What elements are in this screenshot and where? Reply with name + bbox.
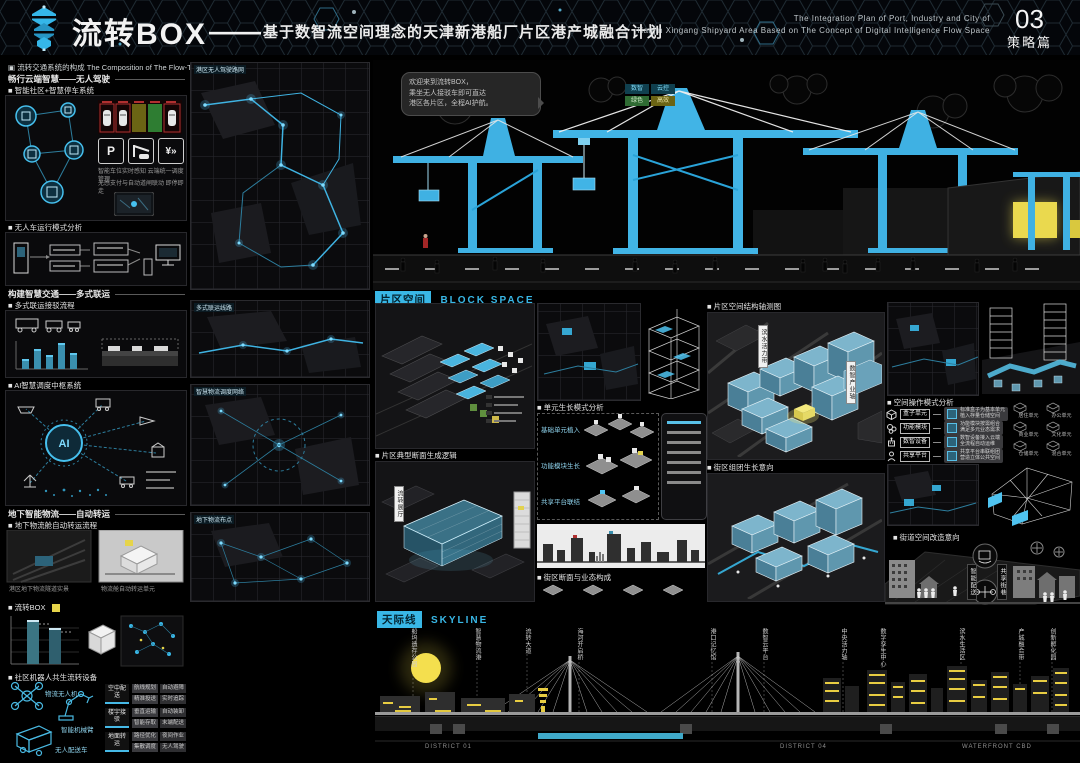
caption-flow-box: ■ 流转BOX	[8, 602, 60, 613]
skyline-label: 海河开启桥	[575, 628, 584, 661]
street-retrofit-elevation: 智能配送 共享街巷	[885, 540, 1080, 606]
header: 流转BOX —— 基于数智流空间理念的天津新港船厂片区港产城融合计划 The I…	[0, 0, 1080, 55]
axon-blue-blocks-top: 滨水活力带 数智产业轴	[707, 312, 885, 460]
robot-icon	[886, 437, 897, 448]
axon-warehouse-retrofit	[375, 303, 535, 449]
map-d2-graphics	[888, 465, 978, 525]
board-subtitle-en: The Integration Plan of Port, Industry a…	[636, 13, 990, 37]
op-row-module: 功能模块 功能模块按需组合满足多元业态需求	[886, 422, 1008, 434]
heading-autodrive: 畅行云端智慧——无人驾驶	[8, 73, 185, 85]
person-icon	[886, 451, 897, 462]
skyline-label: 滨水生活区	[957, 628, 966, 661]
map-b-graphics	[538, 304, 640, 400]
panel-autodrive: P ¥» 智能车位实时感知 云端统一调度管理 无感支付与自动道闸联动 即停即走	[5, 95, 187, 221]
robot-capability-table: 空中配送 航线规划自动避障 精准投送实时追踪 楼宇接驳 垂直运输自动装卸 智能存…	[105, 684, 186, 752]
panel-vehicle-flow	[5, 232, 187, 286]
axon-glass-hall: 流转展厅	[375, 461, 535, 602]
skyline-label: 智慧物流港	[473, 628, 482, 661]
multimodal-diagram	[6, 311, 184, 375]
growth-row-1-label: 基础单元植入	[541, 424, 580, 434]
street-section-strip	[537, 524, 705, 568]
map-underground-nodes: 地下物流布点	[190, 512, 370, 602]
map1-graphics	[191, 63, 369, 289]
caption-cluster-growth: ■ 街区组团生长意向	[707, 462, 774, 473]
red-figure	[423, 234, 428, 248]
robot-item-drone: 物流无人机	[45, 688, 78, 698]
board-subtitle: 基于数智流空间理念的天津新港船厂片区港产城融合计划	[263, 21, 663, 42]
panel-underground: 港区地下物流隧道实景 物流舱自动转运单元	[5, 530, 185, 600]
growth-guideline-list	[661, 413, 707, 520]
speech-bubble: 欢迎来到流转BOX， 乘坐无人接驳车即可直达 港区各片区，全程AI护航。	[401, 72, 541, 116]
tower-cluster-axon	[982, 302, 1080, 394]
map-multimodal-lines: 多式联运线路	[190, 300, 370, 378]
op-row-box-unit: 盒子单元 标准盒子为基本单元植入存量仓储空间	[886, 408, 1008, 420]
street-elevation-graphics	[885, 540, 1080, 606]
map-d1-graphics	[888, 303, 978, 395]
skyline-label: 港口记忆馆	[708, 628, 717, 661]
smart-tags: 数智云控 绿色高效	[625, 84, 675, 106]
robot-item-arm: 智能机械臂	[61, 724, 94, 734]
unit-type-grid: 居住单元 办公单元 商业单元 文化单元 仓储单元 混合单元	[1012, 402, 1078, 459]
unit-cell: 商业单元	[1012, 421, 1045, 440]
table-row: 地面转运 路径优化夜间作业 集散调度无人驾驶	[105, 732, 186, 752]
left-industry	[380, 692, 535, 712]
caption-structure-axon: ■ 片区空间结构轴测图	[707, 301, 781, 312]
panel-flow-box	[5, 614, 185, 670]
skyline-bottom-label: DISTRICT 01	[425, 744, 472, 750]
axon-c1-tag-1: 滨水活力带	[758, 325, 768, 368]
unit-cell: 办公单元	[1045, 402, 1078, 421]
street-tag-1: 智能配送	[967, 564, 977, 600]
skyline-label: 流转大道	[523, 628, 532, 654]
map-operations-context	[887, 302, 979, 396]
street-tag-2: 共享街巷	[997, 564, 1007, 600]
underground-note-1: 港区地下物流隧道实景	[9, 586, 69, 594]
logo-emblem-icon	[22, 5, 66, 51]
parking-icons-row: P ¥»	[98, 138, 184, 164]
map4-caption: 地下物流布点	[194, 515, 234, 524]
map3-caption: 智慧物流调度网络	[194, 387, 246, 396]
skyline-label: 船坞遗存公园	[409, 628, 418, 667]
cable-bridge-2	[661, 652, 815, 712]
phone-mockup	[114, 192, 154, 216]
gate-barrier-icon	[128, 138, 154, 164]
caption-operations: ■ 空间操作模式分析	[887, 397, 954, 408]
axon-blue-blocks-bottom	[707, 473, 885, 602]
robot-item-agv: 无人配送车	[55, 744, 88, 754]
flow-box-graphics	[5, 614, 185, 670]
skyline-label: 产城融合带	[1016, 628, 1025, 661]
parking-slots-diagram	[98, 100, 182, 134]
skyline-label: 中央活力轴	[839, 628, 848, 661]
cube-icon	[886, 409, 897, 420]
operations-diagram: 盒子单元 标准盒子为基本单元植入存量仓储空间 功能模块 功能模块按需组合满足多元…	[886, 408, 1008, 462]
unit-cell: 居住单元	[1012, 402, 1045, 421]
mini-cubes-row	[537, 582, 705, 598]
panel-robots: 物流无人机 智能机械臂 无人配送车 空中配送 航线规划自动避障 精准投送实时追踪…	[5, 682, 185, 760]
parking-icon: P	[98, 138, 124, 164]
growth-tiles-panel: 基础单元植入 功能模块生长 共享平台联结	[537, 413, 659, 520]
map-autodrive-network: 港区无人驾驶路网	[190, 62, 370, 290]
map2-caption: 多式联运线路	[194, 303, 234, 312]
traffic-network-diagram	[6, 96, 94, 218]
map1-caption: 港区无人驾驶路网	[194, 65, 246, 74]
axon-c2-graphics	[708, 474, 882, 599]
wireframe-growth-axon	[643, 303, 705, 399]
wireframe-canopy-axon	[982, 458, 1080, 528]
caption-section-logic: ■ 片区典型断面生成逻辑	[375, 450, 457, 461]
vehicle-flow-diagram	[6, 233, 184, 283]
ai-dispatch-diagram: AI	[6, 391, 184, 503]
growth-row-2-label: 功能模块生长	[541, 460, 580, 470]
axon-c1-tag-2: 数智产业轴	[846, 361, 856, 404]
panel-ai-hub: AI	[5, 390, 187, 506]
guideline-bars	[662, 421, 706, 484]
presentation-board: 流转BOX —— 基于数智流空间理念的天津新港船厂片区港产城融合计划 The I…	[0, 0, 1080, 763]
lit-windows	[825, 670, 1067, 706]
water-strip	[538, 733, 683, 739]
table-row: 楼宇接驳 垂直运输自动装卸 智能存取末端配送	[105, 708, 186, 728]
glass-hall-label-tag: 流转展厅	[394, 486, 404, 522]
title-dash: ——	[209, 16, 261, 47]
map-street-context	[887, 464, 979, 526]
caption-growth-mode: ■ 单元生长模式分析	[537, 402, 604, 413]
page-indicator: 03 策略篇	[1007, 6, 1052, 51]
skyline-bottom-label: DISTRICT 04	[780, 744, 827, 750]
axon-a2-graphics	[376, 462, 532, 599]
heading-multimodal: 构建智慧交通——多式联运	[8, 288, 185, 300]
ai-label: AI	[59, 438, 70, 450]
map3-graphics	[191, 385, 369, 505]
board-title: 流转BOX	[72, 9, 207, 53]
unit-cell: 文化单元	[1045, 421, 1078, 440]
hero-render-port-cranes: 欢迎来到流转BOX， 乘坐无人接驳车即可直达 港区各片区，全程AI护航。 数智云…	[373, 60, 1080, 290]
map-unit-context	[537, 303, 641, 401]
cluster-icon	[886, 423, 897, 434]
panel-multimodal	[5, 310, 187, 378]
growth-row-3-label: 共享平台联结	[541, 496, 580, 506]
skyline-label: 创新孵化园	[1048, 628, 1057, 661]
map2-graphics	[191, 301, 369, 377]
skyline-label: 数智云平台	[760, 628, 769, 661]
yellow-cube-icon	[52, 604, 60, 612]
axon-a1-graphics	[376, 304, 532, 446]
bridge-deck	[375, 712, 1080, 715]
lit-tower	[538, 688, 548, 712]
page-number: 03	[1007, 6, 1052, 32]
op-row-device: 数智设备 数智设备接入云端全流程自动运维	[886, 436, 1008, 448]
heading-underground: 地下智能物流——自动转运	[8, 508, 185, 520]
unit-cell: 仓储单元	[1012, 440, 1045, 459]
table-row: 空中配送 航线规划自动避障 精准投送实时追踪	[105, 684, 186, 704]
skyline-bottom-label: WATERFRONT CBD	[962, 744, 1032, 750]
city-buildings	[823, 666, 1069, 712]
growth-tiles-graphics	[578, 414, 656, 517]
page-name: 策略篇	[1007, 32, 1052, 51]
skyline-label: 数字孪生中心	[878, 628, 887, 667]
payment-icon: ¥»	[158, 138, 184, 164]
map-logistics-network: 智慧物流调度网络	[190, 384, 370, 506]
map4-graphics	[191, 513, 369, 601]
underground-note-2: 物流舱自动转运单元	[101, 586, 155, 594]
unit-cell: 混合单元	[1045, 440, 1078, 459]
